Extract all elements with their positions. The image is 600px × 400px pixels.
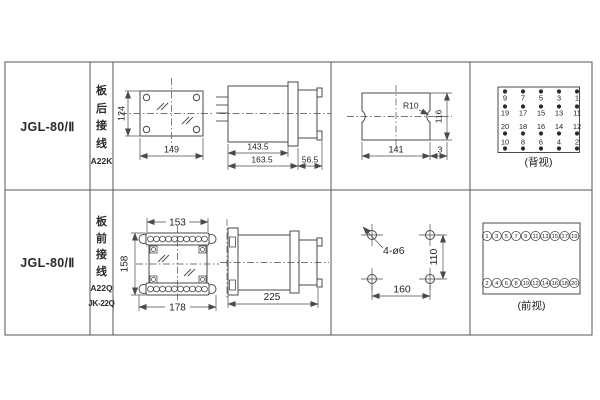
model-label-row2: JGL-80/Ⅱ <box>5 190 90 335</box>
front-width-dim: 149 <box>164 145 179 155</box>
terminal-number: 12 <box>532 281 538 287</box>
terminal-number: 15 <box>537 109 545 118</box>
drill-width-dim: 160 <box>393 284 411 296</box>
terminal-number: 5 <box>505 234 508 240</box>
terminal-number: 6 <box>505 281 508 287</box>
terminal-number: 7 <box>514 234 517 240</box>
terminal-number: 13 <box>555 109 563 118</box>
side-rear-dim: 56.5 <box>302 155 319 165</box>
terminal-pins <box>216 97 228 121</box>
terminal-number: 14 <box>542 281 549 287</box>
wiring-char: 线 <box>96 139 107 150</box>
wiring-char: 线 <box>96 267 107 278</box>
terminal-number: 16 <box>537 122 545 131</box>
terminal-number: 10 <box>523 281 529 287</box>
datasheet-page: 124 149 143.5 163.5 56.5 <box>0 0 600 400</box>
front-view-caption: (前视) <box>518 299 546 312</box>
terminal-number: 6 <box>539 138 543 147</box>
holes-label: 4-ø6 <box>383 245 405 257</box>
cutout-height-dim: 116 <box>434 109 444 123</box>
model-label-row1: JGL-80/Ⅱ <box>5 62 90 190</box>
row2-terminal-front-view: 1 3 5 7 9 11 13 15 17 19 2 4 6 8 10 12 1… <box>482 223 580 312</box>
terminal-number: 1 <box>575 94 579 103</box>
terminal-number: 3 <box>495 234 498 240</box>
terminal-number: 19 <box>571 234 577 240</box>
terminal-number: 8 <box>521 138 525 147</box>
terminal-number: 7 <box>521 94 525 103</box>
row2-front-view: 153 158 178 <box>120 218 220 314</box>
terminal-number: 13 <box>542 234 548 240</box>
front-height-dim: 158 <box>120 255 131 272</box>
terminal-number: 1 <box>485 234 488 240</box>
terminal-number: 9 <box>503 94 507 103</box>
terminal-number: 2 <box>575 138 579 147</box>
terminal-number: 11 <box>573 109 581 118</box>
front-width-dim: 178 <box>169 303 186 314</box>
dimension-lines <box>131 218 216 311</box>
wiring-code-alt: JK-22Q <box>88 299 114 308</box>
terminal-number: 4 <box>557 138 561 147</box>
front-top-dim: 153 <box>169 218 186 229</box>
cutout-edge-dim: 3 <box>438 145 443 155</box>
front-height-dim: 124 <box>117 106 127 121</box>
terminal-number: 17 <box>519 109 527 118</box>
row2-drilling-plan: 4-ø6 110 160 <box>361 224 447 300</box>
wiring-char: 接 <box>96 121 107 132</box>
row1-terminal-rear-view: 9 7 5 3 1 19 17 15 13 11 20 18 16 14 12 … <box>498 87 581 169</box>
terminal-number: 19 <box>501 109 509 118</box>
wiring-code: A22K <box>91 157 113 166</box>
wiring-type-row1: 板 后 接 线 A22K <box>90 62 113 190</box>
terminal-number: 17 <box>561 234 567 240</box>
terminal-number: 14 <box>555 122 563 131</box>
side-total-dim: 163.5 <box>251 155 273 165</box>
row2-side-view: 225 <box>220 219 329 308</box>
wiring-char: 接 <box>96 250 107 261</box>
cutout-width-dim: 141 <box>388 145 403 155</box>
terminal-number: 20 <box>571 281 577 287</box>
wiring-char: 前 <box>96 234 107 245</box>
glass-hatch-marks <box>158 255 195 276</box>
terminal-number: 5 <box>539 94 543 103</box>
row1-front-view: 124 149 <box>117 78 215 160</box>
terminal-number: 2 <box>485 281 488 287</box>
row1-panel-cutout: R10 116 141 3 <box>347 85 452 160</box>
corner-pads <box>150 246 206 283</box>
terminal-number: 15 <box>552 234 558 240</box>
side-body-dim: 143.5 <box>247 142 269 152</box>
wiring-code: A22Q <box>90 284 112 293</box>
wiring-char: 板 <box>96 86 107 97</box>
terminal-number: 11 <box>532 234 538 240</box>
terminal-number: 10 <box>501 138 509 147</box>
terminal-number: 3 <box>557 94 561 103</box>
drill-height-dim: 110 <box>428 248 440 265</box>
side-total-dim: 225 <box>264 292 281 303</box>
wiring-char: 板 <box>96 217 107 228</box>
cutout-radius-label: R10 <box>403 101 419 111</box>
wiring-type-row2: 板 前 接 线 A22Q JK-22Q <box>90 190 113 335</box>
terminal-number: 20 <box>501 122 509 131</box>
terminal-number: 18 <box>519 122 527 131</box>
wiring-char: 后 <box>96 104 107 115</box>
terminal-number: 16 <box>552 281 558 287</box>
rear-view-caption: (背视) <box>525 156 553 169</box>
terminal-number: 9 <box>524 234 527 240</box>
terminal-number: 12 <box>573 122 581 131</box>
terminal-number: 8 <box>514 281 517 287</box>
terminal-number: 18 <box>561 281 567 287</box>
row1-side-view: 143.5 163.5 56.5 <box>216 82 331 170</box>
